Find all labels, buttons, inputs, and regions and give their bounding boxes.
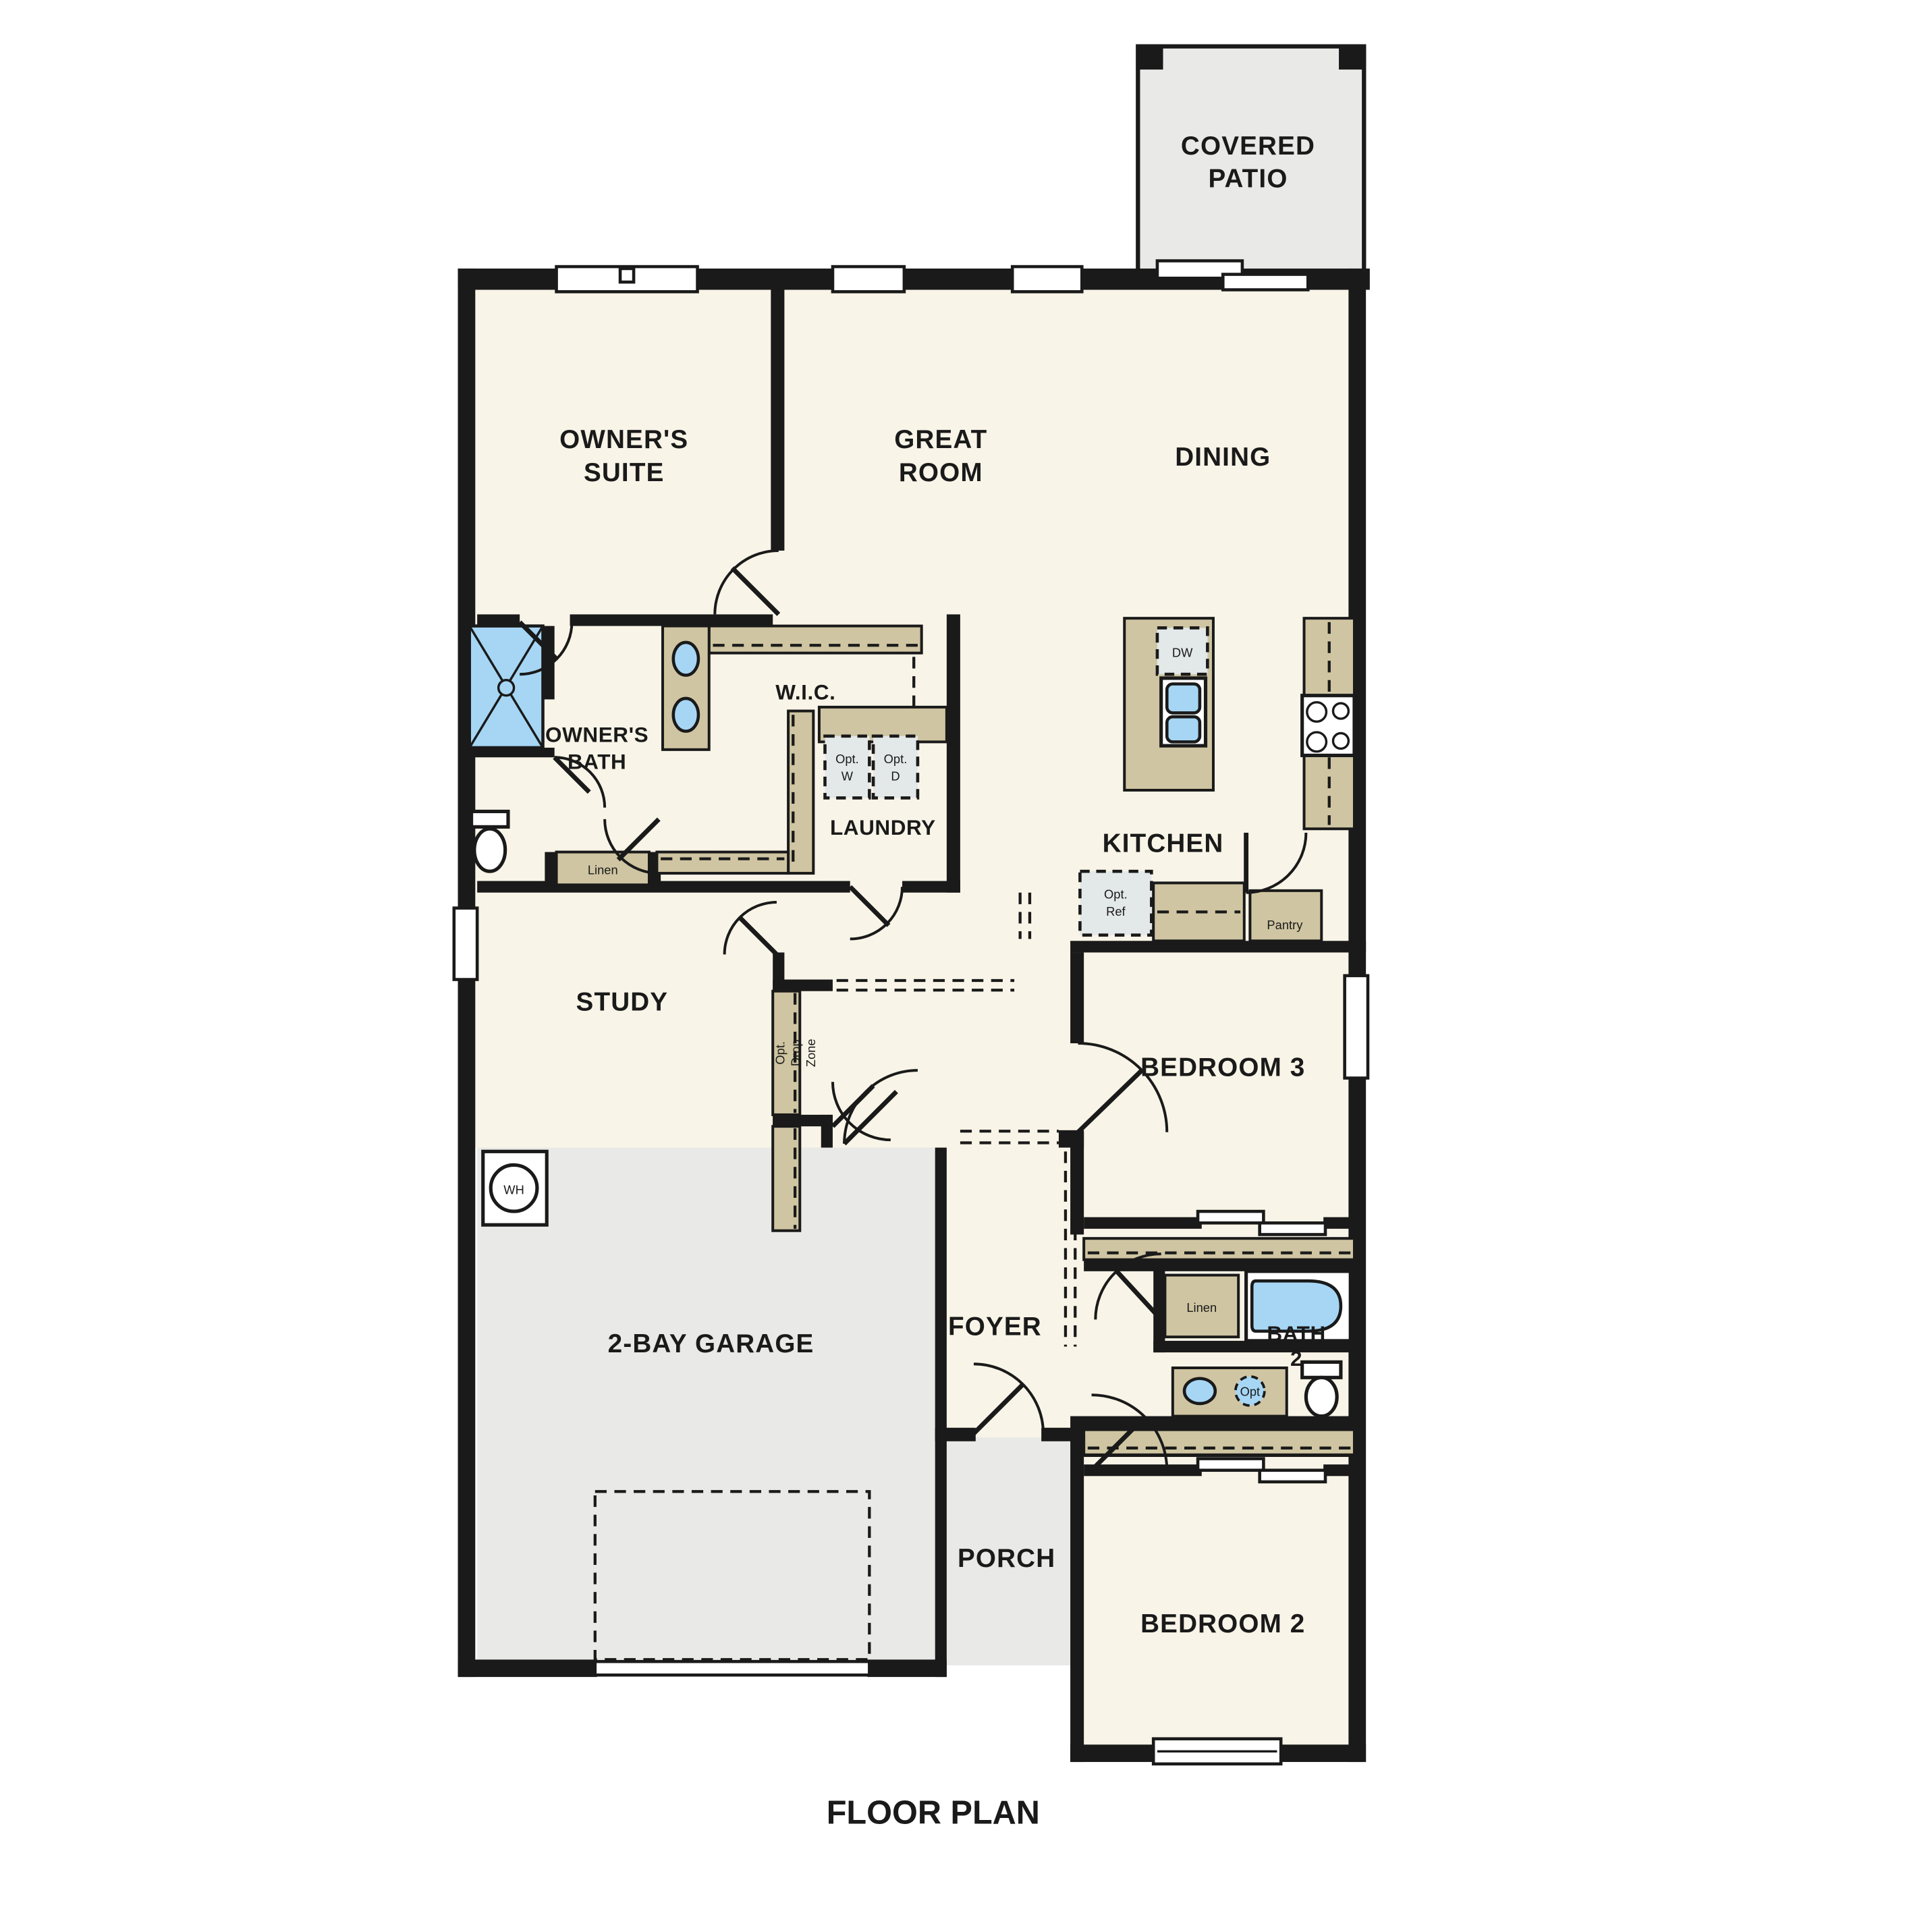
- bedroom3-label: BEDROOM 3: [1140, 1053, 1305, 1082]
- patio-post-right: [1339, 45, 1366, 70]
- owners-shower: [470, 626, 543, 748]
- opt-ref-label: Opt.: [1104, 887, 1128, 901]
- garage-label: 2-BAY GARAGE: [608, 1329, 815, 1358]
- bedroom3-closet-slider-1: [1198, 1211, 1263, 1223]
- main-living-floor: [464, 276, 1366, 941]
- bath2-label: BATH: [1267, 1321, 1325, 1346]
- svg-text:Zone: Zone: [804, 1039, 818, 1067]
- bath2-toilet: [1302, 1362, 1341, 1416]
- bedroom3-window: [1345, 976, 1368, 1078]
- floor-plan-page: COVERED PATIO OWNER'S SUITE GREAT ROOM D…: [0, 0, 1932, 1932]
- bedroom2-label: BEDROOM 2: [1140, 1609, 1305, 1638]
- owners-linen-label: Linen: [588, 863, 618, 877]
- opt-refrigerator-box: [1080, 871, 1151, 935]
- great-room-window-1: [833, 267, 904, 292]
- opt-washer-box: [825, 736, 870, 798]
- great-room-label: GREAT: [894, 425, 987, 454]
- garage-door-threshold: [595, 1661, 870, 1675]
- pantry-shelf: [1250, 891, 1321, 941]
- kitchen-sink: [1161, 678, 1206, 746]
- kitchen-label: KITCHEN: [1103, 829, 1224, 858]
- bath2-label-2: 2: [1290, 1346, 1302, 1371]
- owners-toilet: [472, 811, 508, 871]
- opt-dryer-box: [873, 736, 918, 798]
- svg-text:Opt.: Opt.: [773, 1041, 787, 1065]
- patio-post-left: [1136, 45, 1163, 70]
- drop-zone-label: Opt. Drop Zone: [773, 1039, 818, 1067]
- opt-ref-label-2: Ref: [1106, 904, 1126, 918]
- bedroom3-closet-shelf: [1084, 1238, 1354, 1259]
- bedroom2-closet-slider-1: [1198, 1459, 1263, 1470]
- bedroom2-closet-shelf: [1084, 1430, 1354, 1455]
- wh-label: WH: [503, 1182, 524, 1196]
- floor-plan-image: COVERED PATIO OWNER'S SUITE GREAT ROOM D…: [0, 0, 1932, 1932]
- bath2-linen-label: Linen: [1186, 1300, 1217, 1315]
- wic-counter-top: [709, 626, 922, 653]
- owners-suite-label-2: SUITE: [584, 458, 665, 487]
- plan-title: FLOOR PLAN: [827, 1795, 1040, 1831]
- opt-w-label-2: W: [841, 769, 854, 783]
- foyer-label: FOYER: [948, 1312, 1042, 1341]
- opt-w-label: Opt.: [835, 752, 859, 766]
- dw-label: DW: [1172, 645, 1193, 659]
- bedroom2-closet-slider-2: [1260, 1470, 1325, 1482]
- owners-sink-1: [673, 642, 698, 675]
- great-room-window-2: [1012, 267, 1082, 292]
- laundry-label: LAUNDRY: [830, 815, 936, 839]
- study-window: [454, 908, 477, 980]
- owners-bath-label: OWNER'S: [545, 722, 648, 746]
- covered-patio-label: COVERED: [1181, 132, 1315, 161]
- owners-bath-label-2: BATH: [568, 749, 626, 773]
- great-room-label-2: ROOM: [899, 458, 983, 487]
- dining-label: DINING: [1175, 443, 1271, 472]
- pantry-label: Pantry: [1267, 918, 1303, 932]
- owners-sink-2: [673, 698, 698, 732]
- owners-suite-label: OWNER'S: [559, 425, 688, 454]
- opt-d-label: Opt.: [884, 752, 908, 766]
- patio-slider-panel-2: [1223, 275, 1308, 290]
- bath2-sink: [1184, 1379, 1215, 1404]
- porch-label: PORCH: [958, 1544, 1055, 1573]
- wic-label: W.I.C.: [775, 680, 835, 704]
- window-mullion-tick: [620, 269, 634, 282]
- covered-patio-label-2: PATIO: [1208, 165, 1288, 194]
- wic-counter-bottom: [657, 852, 788, 873]
- bedroom3-closet-slider-2: [1260, 1223, 1325, 1234]
- cooktop: [1302, 696, 1354, 756]
- study-label: STUDY: [576, 987, 669, 1016]
- study-floor: [464, 893, 784, 1148]
- svg-text:Drop: Drop: [788, 1039, 802, 1066]
- opt-sink-label: Opt: [1240, 1385, 1261, 1399]
- opt-d-label-2: D: [891, 769, 900, 783]
